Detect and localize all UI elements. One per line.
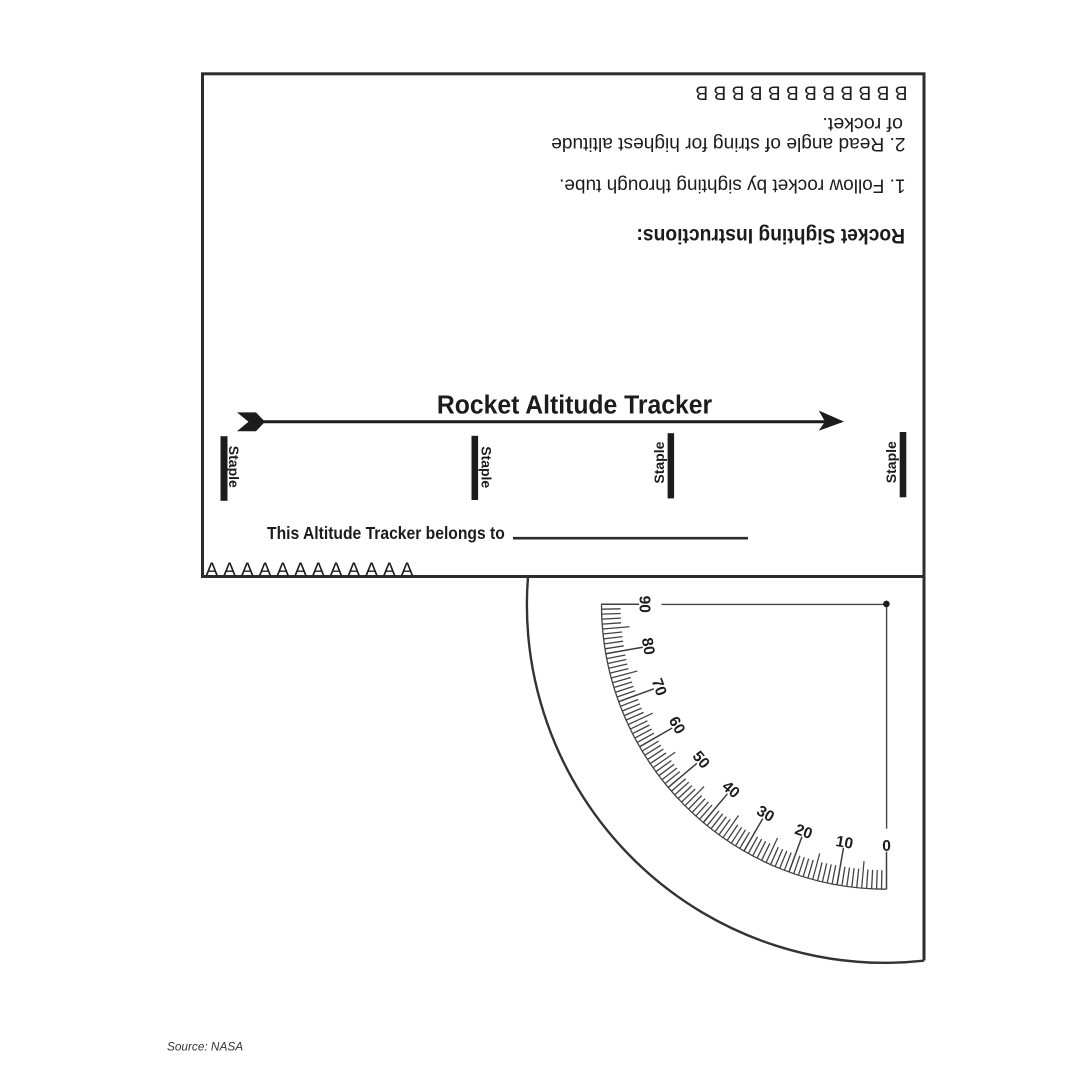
- svg-text:80: 80: [638, 636, 658, 656]
- svg-text:Staple: Staple: [651, 441, 667, 483]
- svg-text:90: 90: [636, 596, 653, 613]
- svg-text:of rocket.: of rocket.: [822, 113, 903, 135]
- svg-text:Rocket Sighting Instructions:: Rocket Sighting Instructions:: [636, 224, 905, 247]
- svg-text:Source: NASA: Source: NASA: [167, 1040, 243, 1054]
- svg-text:0: 0: [882, 838, 891, 855]
- svg-text:This Altitude Tracker belongs: This Altitude Tracker belongs to: [267, 523, 505, 543]
- svg-text:Staple: Staple: [226, 446, 242, 488]
- svg-text:Staple: Staple: [479, 446, 495, 488]
- svg-text:10: 10: [834, 833, 854, 853]
- svg-text:A A A A A A A A A A A A: A A A A A A A A A A A A: [206, 559, 414, 580]
- svg-text:Rocket Altitude Tracker: Rocket Altitude Tracker: [437, 391, 712, 419]
- svg-text:B B B B B B B B B B B B: B B B B B B B B B B B B: [695, 82, 907, 103]
- svg-text:1. Follow rocket by sighting t: 1. Follow rocket by sighting through tub…: [559, 175, 905, 196]
- svg-text:Staple: Staple: [883, 441, 899, 483]
